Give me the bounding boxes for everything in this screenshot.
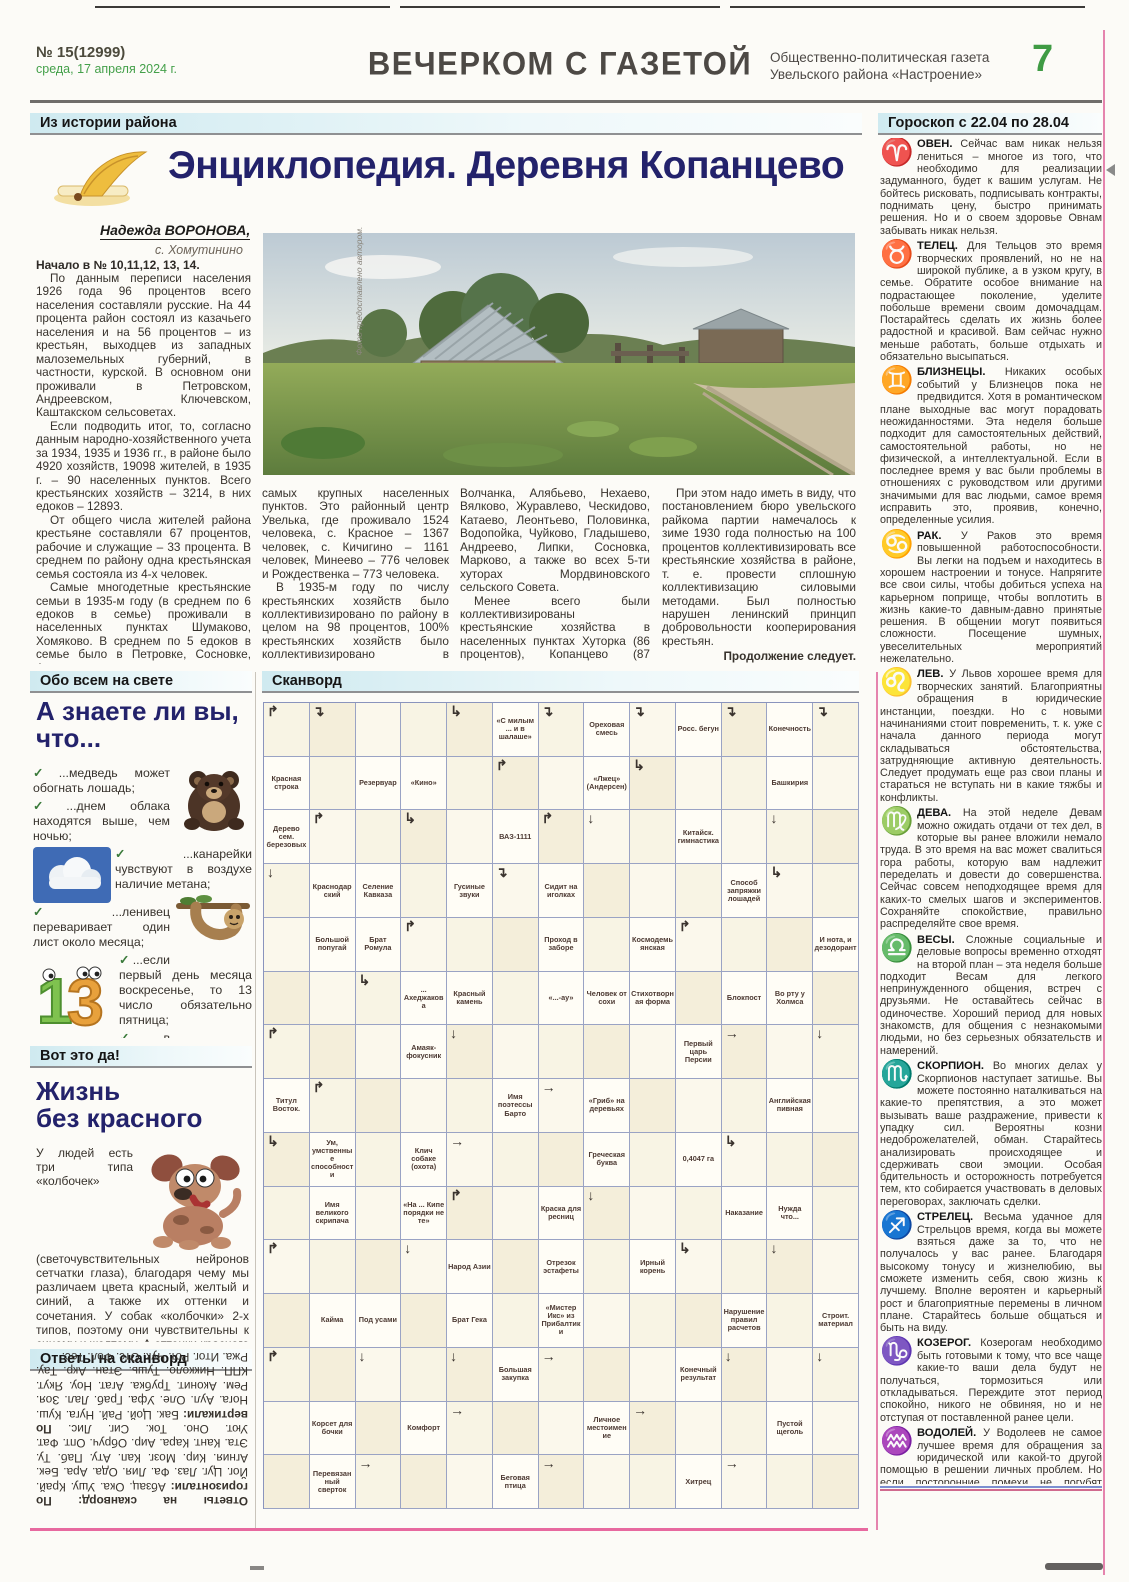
skanword-answer-cell: [767, 918, 813, 972]
cloud-illustration: [33, 847, 111, 903]
issue-date: среда, 17 апреля 2024 г.: [36, 62, 177, 76]
skanword-answer-cell: →: [722, 1455, 768, 1509]
aries-icon: ♈: [880, 139, 912, 166]
skanword-clue-cell: Брат Гека: [447, 1294, 493, 1348]
pink-column-rule: [876, 672, 878, 1530]
horoscope-sign-aquarius: ♒ВОДОЛЕЙ. У Водолеев не самое лучшее вре…: [880, 1427, 1102, 1484]
skanword-answer-cell: [722, 757, 768, 811]
skanword-answer-cell: [630, 1025, 676, 1079]
skanword-answer-cell: [401, 864, 447, 918]
skanword-clue-cell: «Мистер Икс» из Прибалтики: [539, 1294, 585, 1348]
skanword-clue-cell: Китайск. гимнастика: [676, 810, 722, 864]
publisher-line: Увельского района «Настроение»: [770, 67, 1020, 84]
skanword-answer-cell: ↱: [401, 918, 447, 972]
facts-title-line: А знаете ли вы,: [36, 698, 239, 725]
skanword-clue-cell: Селение Кавказа: [356, 864, 402, 918]
skanword-answer-cell: [676, 1294, 722, 1348]
to-be-continued: Продолжение следует.: [662, 650, 856, 663]
skanword-answer-cell: [401, 703, 447, 757]
skanword-arrow: ↓: [404, 1241, 411, 1255]
horoscope-sign-cancer: ♋РАК. У Раков это время повышенной работ…: [880, 530, 1102, 666]
skanword-answer-cell: ↓: [356, 1348, 402, 1402]
skanword-clue-cell: Первый царь Персии: [676, 1025, 722, 1079]
leo-icon: ♌: [880, 669, 912, 696]
skanword-answer-cell: [813, 1133, 859, 1187]
horoscope-sign-taurus: ♉ТЕЛЕЦ. Для Тельцов это время творческих…: [880, 240, 1102, 363]
check-icon: ✓: [119, 953, 131, 967]
skanword-answer-cell: [310, 1348, 356, 1402]
skanword-answer-cell: [813, 1402, 859, 1456]
horoscope-sign-name: СКОРПИОН.: [917, 1060, 993, 1072]
horoscope-sign-name: ЛЕВ.: [917, 668, 949, 680]
skanword-arrow: ↓: [725, 1349, 732, 1363]
skanword-answer-cell: ↱: [493, 757, 539, 811]
horoscope-sign-name: СТРЕЛЕЦ.: [917, 1211, 984, 1223]
skanword-answer-cell: ↳: [676, 1240, 722, 1294]
skanword-answer-cell: [356, 1402, 402, 1456]
facts-title: А знаете ли вы, что...: [36, 698, 239, 753]
skanword-answer-cell: [401, 1079, 447, 1133]
skanword-answer-cell: ↓: [767, 1240, 813, 1294]
skanword-clue-cell: Блокпост: [722, 972, 768, 1026]
skanword-arrow: →: [359, 1456, 373, 1470]
skanword-arrow: →: [450, 1134, 464, 1148]
skanword-answer-cell: [493, 1133, 539, 1187]
skanword-clue-cell: Наказание: [722, 1187, 768, 1241]
skanword-arrow: ↓: [450, 1026, 457, 1040]
skanword-answer-cell: [264, 972, 310, 1026]
article-paragraph: самых крупных населенных пунктов. Это ра…: [262, 487, 449, 581]
skanword-clue-cell: Нарушение правил расчетов: [722, 1294, 768, 1348]
skanword-answer-cell: [356, 1133, 402, 1187]
skanword-answer-cell: [493, 1240, 539, 1294]
article-paragraph: При этом надо иметь в виду, что постанов…: [662, 487, 856, 648]
skanword-clue-cell: Конечность: [767, 703, 813, 757]
scorpio-icon: ♏: [880, 1061, 912, 1088]
skanword-clue-cell: Гусиные звуки: [447, 864, 493, 918]
facts-list: ✓...медведь может обогнать лошадь; ✓...д…: [33, 766, 252, 1038]
skanword-clue-cell: «...-ау»: [539, 972, 585, 1026]
skanword-answer-cell: ↱: [264, 1348, 310, 1402]
horoscope-sign-name: ТЕЛЕЦ.: [917, 240, 967, 252]
skanword-answer-cell: ↱: [264, 1025, 310, 1079]
newspaper-page: № 15(12999) среда, 17 апреля 2024 г. ВЕЧ…: [0, 0, 1129, 1582]
skanword-arrow: ↓: [267, 865, 274, 879]
skanword-answer-cell: ↓: [767, 810, 813, 864]
skanword-answer-cell: [813, 1187, 859, 1241]
skanword-answer-cell: [401, 1455, 447, 1509]
skanword-arrow: ↱: [313, 811, 325, 825]
skanword-arrow: ↓: [770, 1241, 777, 1255]
skanword-arrow: ↱: [267, 1349, 279, 1363]
article-paragraph: Если подводить итог, то, согласно данным…: [36, 420, 251, 514]
skanword-arrow: →: [633, 1403, 647, 1417]
publisher-line: Общественно-политическая газета: [770, 50, 1020, 67]
skanword-answer-cell: [310, 972, 356, 1026]
byline-author: Надежда ВОРОНОВА,: [100, 222, 250, 240]
margin-arrow-mark: [1106, 164, 1115, 176]
skanword-clue-cell: Сидит на иголках: [539, 864, 585, 918]
skanword-arrow: ↳: [770, 865, 782, 879]
section-bar-history: Из истории района: [30, 113, 862, 135]
skanword-arrow: ↓: [450, 1349, 457, 1363]
skanword-answer-cell: [813, 757, 859, 811]
facts-title-line: что...: [36, 725, 239, 752]
skanword-clue-cell: Беговая птица: [493, 1455, 539, 1509]
skanword-clue-cell: Титул Восток.: [264, 1079, 310, 1133]
skanword-clue-cell: Краска для ресниц: [539, 1187, 585, 1241]
skanword-answer-cell: [584, 1240, 630, 1294]
skanword-answer-cell: →: [539, 1455, 585, 1509]
skanword-answer-cell: [813, 810, 859, 864]
horoscope-sign-gemini: ♊БЛИЗНЕЦЫ. Никаких особых событий у Близ…: [880, 366, 1102, 526]
skanword-answer-cell: ↱: [310, 1079, 356, 1133]
skanword-answer-cell: [447, 918, 493, 972]
skanword-answer-cell: →: [539, 1079, 585, 1133]
skanword-answer-cell: [813, 972, 859, 1026]
section-bar-facts: Обо всем на свете: [30, 671, 252, 693]
skanword-clue-cell: Красная строка: [264, 757, 310, 811]
cancer-icon: ♋: [880, 531, 912, 558]
skanword-answer-cell: ↳: [722, 1133, 768, 1187]
column-rule: [255, 672, 256, 1530]
fact-text: ...если первый день месяца воскресенье, …: [119, 953, 252, 1027]
wow-article: У людей есть три типа «колбочек» (светоч…: [36, 1146, 249, 1342]
skanword-arrow: ↓: [816, 1349, 823, 1363]
skanword-answer-cell: [584, 864, 630, 918]
skanword-answer-cell: →: [447, 1402, 493, 1456]
wow-title: Жизнь без красного: [36, 1078, 202, 1133]
skanword-answer-cell: ↓: [722, 1348, 768, 1402]
skanword-arrow: ↱: [267, 1026, 279, 1040]
skanword-answer-cell: ↓: [813, 1348, 859, 1402]
skanword-answer-cell: [813, 1240, 859, 1294]
skanword-arrow: →: [542, 1080, 556, 1094]
skanword-answer-cell: ↓: [401, 1240, 447, 1294]
horoscope-sign-name: ВЕСЫ.: [917, 934, 966, 946]
skanword-clue-cell: Конечный результат: [676, 1348, 722, 1402]
skanword-clue-cell: Кайма: [310, 1294, 356, 1348]
skanword-arrow: ↴: [633, 704, 645, 718]
skanword-clue-cell: Краснодарский: [310, 864, 356, 918]
check-icon: ✓: [115, 847, 181, 861]
skanword-answer-cell: ↓: [447, 1348, 493, 1402]
libra-icon: ♎: [880, 935, 912, 962]
horoscope-sign-scorpio: ♏СКОРПИОН. Во многих делах у Скорпионов …: [880, 1060, 1102, 1208]
skanword-answer-cell: [584, 1025, 630, 1079]
number-13-illustration: 1 3: [33, 953, 115, 1031]
skanword-answer-cell: [676, 1402, 722, 1456]
skanword-arrow: ↱: [267, 1241, 279, 1255]
skanword-answer-cell: [356, 1025, 402, 1079]
skanword-arrow: ↱: [404, 919, 416, 933]
skanword-answer-cell: [630, 1187, 676, 1241]
section-bar-horoscope: Гороскоп с 22.04 по 28.04: [878, 113, 1102, 135]
skanword-clue-cell: «Лжец» (Андерсен): [584, 757, 630, 811]
article-paragraph: Волчанка, Алябьево, Нехаево, Вялково, Жу…: [460, 487, 650, 595]
skanword-clue-cell: «С милым ... и в шалаше»: [493, 703, 539, 757]
skanword-answer-cell: [264, 1455, 310, 1509]
skanword-answer-cell: [493, 1187, 539, 1241]
skanword-clue-cell: Большая закупка: [493, 1348, 539, 1402]
skanword-clue-cell: Комфорт: [401, 1402, 447, 1456]
skanword-answer-cell: [630, 1348, 676, 1402]
skanword-clue-cell: Стихотворная форма: [630, 972, 676, 1026]
skanword-clue-cell: Космодемьянская: [630, 918, 676, 972]
article-column-3: Волчанка, Алябьево, Нехаево, Вялково, Жу…: [460, 487, 650, 663]
skanword-clue-cell: Ирный корень: [630, 1240, 676, 1294]
skanword-answer-cell: ↓: [813, 1025, 859, 1079]
skanword-clue-cell: Проход в заборе: [539, 918, 585, 972]
skanword-clue-cell: Резервуар: [356, 757, 402, 811]
article-paragraph: По данным переписи населения 1926 года 9…: [36, 272, 251, 420]
skanword-answer-cell: ↳: [630, 757, 676, 811]
skanword-arrow: →: [542, 1456, 556, 1470]
check-icon: ✓: [33, 905, 110, 919]
skanword-clue-cell: Большой попугай: [310, 918, 356, 972]
wow-title-line: Жизнь: [36, 1078, 202, 1105]
skanword-clue-cell: Башкирия: [767, 757, 813, 811]
article-paragraph: Самые многодетные крестьянские семьи в 1…: [36, 581, 251, 664]
skanword-arrow: →: [725, 1026, 739, 1040]
quill-icon: [50, 148, 172, 208]
skanword-answer-cell: [767, 1348, 813, 1402]
publisher-info: Общественно-политическая газета Увельско…: [770, 50, 1020, 84]
article-paragraph: Менее всего были коллективизированы крес…: [460, 595, 650, 664]
skanword-arrow: ↴: [725, 704, 737, 718]
article-column-2: самых крупных населенных пунктов. Это ра…: [262, 487, 449, 663]
skanword-arrow: →: [725, 1456, 739, 1470]
skanword-arrow: ↱: [267, 704, 279, 718]
horoscope-sign-name: БЛИЗНЕЦЫ.: [917, 366, 1005, 378]
skanword-answer-cell: [539, 1402, 585, 1456]
skanword-clue-cell: «Гриб» на деревьях: [584, 1079, 630, 1133]
skanword-clue-cell: Амаяк-фокусник: [401, 1025, 447, 1079]
skanword-answer-cell: [722, 1079, 768, 1133]
skanword-answer-cell: ↴: [493, 864, 539, 918]
skanword-answer-cell: [447, 1079, 493, 1133]
skanword-answer-cell: [264, 1402, 310, 1456]
skanword-answer-cell: ↴: [630, 703, 676, 757]
skanword-clue-cell: Английская пивная: [767, 1079, 813, 1133]
skanword-answer-cell: [584, 1348, 630, 1402]
skanword-answer-cell: [539, 1133, 585, 1187]
skanword-clue-cell: Имя великого скрипача: [310, 1187, 356, 1241]
skanword-clue-cell: Ум, умственные способности: [310, 1133, 356, 1187]
skanword-clue-cell: Во рту у Холмса: [767, 972, 813, 1026]
skanword-answer-cell: [676, 1187, 722, 1241]
skanword-clue-cell: Имя поэтессы Барто: [493, 1079, 539, 1133]
skanword-answer-cell: ↴: [539, 703, 585, 757]
skanword-answer-cell: [630, 1294, 676, 1348]
horoscope-sign-name: РАК.: [917, 530, 961, 542]
skanword-clue-cell: Ореховая смесь: [584, 703, 630, 757]
bottom-rule: [30, 1528, 868, 1531]
skanword-answer-cell: [813, 1455, 859, 1509]
horoscope-sign-name: ВОДОЛЕЙ.: [917, 1427, 983, 1439]
skanword-answer-cell: [676, 864, 722, 918]
skanword-clue-cell: Красный камень: [447, 972, 493, 1026]
skanword-answer-cell: ↳: [264, 1133, 310, 1187]
skanword-answer-cell: [630, 864, 676, 918]
skanword-answer-cell: ↱: [264, 1240, 310, 1294]
skanword-answer-cell: [676, 1079, 722, 1133]
skanword-clue-cell: Пустой щеголь: [767, 1402, 813, 1456]
sloth-illustration: [174, 895, 252, 955]
wow-title-line: без красного: [36, 1105, 202, 1132]
skanword-arrow: →: [450, 1403, 464, 1417]
page-number: 7: [1032, 38, 1053, 81]
skanword-arrow: ↴: [496, 865, 508, 879]
skanword-clue-cell: Брат Ромула: [356, 918, 402, 972]
skanword-clue-cell: Дерево сем. березовых: [264, 810, 310, 864]
article-column-4: При этом надо иметь в виду, что постанов…: [662, 487, 856, 663]
aquarius-icon: ♒: [880, 1428, 912, 1455]
skanword-answer-cell: ↴: [310, 703, 356, 757]
skanword-arrow: ↳: [359, 973, 371, 987]
page-edge-rule: [1103, 30, 1105, 1575]
skanword-arrow: ↓: [816, 1026, 823, 1040]
skanword-answer-cell: →: [630, 1402, 676, 1456]
skanword-answer-cell: ↱: [264, 703, 310, 757]
skanword-answer-cell: [722, 918, 768, 972]
skanword-clue-cell: «На ... Кипе порядки не те»: [401, 1187, 447, 1241]
skanword-answer-cell: [722, 1402, 768, 1456]
skanword-answer-cell: [813, 1079, 859, 1133]
check-icon: ✓: [33, 766, 57, 780]
taurus-icon: ♉: [880, 241, 912, 268]
skanword-answer-cell: ↳: [767, 864, 813, 918]
skanword-answer-cell: ↓: [584, 1187, 630, 1241]
article-paragraph: От общего числа жителей района крестьяне…: [36, 514, 251, 581]
skanword-answer-cell: [447, 757, 493, 811]
horoscope-end-rule: [880, 1486, 1102, 1488]
skanword-arrow: ↱: [313, 1080, 325, 1094]
header-rule: [30, 100, 1102, 103]
skanword-answer-cell: [630, 1079, 676, 1133]
skanword-clue-cell: Отрезок эстафеты: [539, 1240, 585, 1294]
capricorn-icon: ♑: [880, 1338, 912, 1365]
skanword-clue-cell: ВАЗ-1111: [493, 810, 539, 864]
skanword-arrow: ↱: [679, 919, 691, 933]
skanword-clue-cell: Хитрец: [676, 1455, 722, 1509]
bear-illustration: [174, 766, 252, 832]
print-artifact: [400, 6, 720, 8]
skanword-answer-cell: ↓: [447, 1025, 493, 1079]
skanword-answer-cell: [356, 703, 402, 757]
section-bar-wow: Вот это да!: [30, 1046, 252, 1068]
skanword-answer-cell: [493, 1402, 539, 1456]
skanword-answer-cell: [767, 1025, 813, 1079]
mosquito-illustration: [174, 1031, 252, 1038]
skanword-clue-cell: Способ запряжки лошадей: [722, 864, 768, 918]
skanword-answers: Ответы на сканворд: По горизонтали: Абза…: [36, 1380, 248, 1508]
skanword-clue-cell: Личное местоимение: [584, 1402, 630, 1456]
check-icon: ✓: [119, 1031, 151, 1038]
print-artifact: [730, 6, 1085, 8]
horoscope-sign-sagittarius: ♐СТРЕЛЕЦ. Весьма удачное для Стрельцов в…: [880, 1211, 1102, 1334]
print-artifact: [1045, 1563, 1103, 1570]
skanword-arrow: ↳: [679, 1241, 691, 1255]
horoscope-end-rule: [880, 1489, 1102, 1491]
skanword-arrow: ↓: [587, 1188, 594, 1202]
print-artifact: [95, 6, 390, 8]
skanword-clue-cell: И нота, и дезодорант: [813, 918, 859, 972]
skanword-clue-cell: Нужда что...: [767, 1187, 813, 1241]
skanword-answer-cell: [676, 972, 722, 1026]
skanword-clue-cell: Народ Азии: [447, 1240, 493, 1294]
skanword-answer-cell: [401, 1294, 447, 1348]
skanword-answer-cell: [630, 1133, 676, 1187]
skanword-answer-cell: [356, 1079, 402, 1133]
skanword-answer-cell: [722, 810, 768, 864]
village-photo: [263, 233, 855, 475]
skanword-answer-cell: [447, 1455, 493, 1509]
skanword-answer-cell: [356, 1240, 402, 1294]
series-note: Начало в № 10,11,12, 13, 14.: [36, 258, 200, 272]
skanword-arrow: ↓: [770, 811, 777, 825]
skanword-answer-cell: [539, 757, 585, 811]
skanword-clue-cell: «Кино»: [401, 757, 447, 811]
skanword-answer-cell: →: [447, 1133, 493, 1187]
skanword-answer-cell: [584, 1294, 630, 1348]
skanword-answer-cell: →: [539, 1348, 585, 1402]
skanword-arrow: ↴: [542, 704, 554, 718]
skanword-answer-cell: [356, 810, 402, 864]
skanword-arrow: ↴: [313, 704, 325, 718]
skanword-arrow: ↳: [450, 704, 462, 718]
skanword-answer-cell: ↱: [447, 1187, 493, 1241]
dog-illustration: [137, 1146, 249, 1250]
skanword-answer-cell: [813, 864, 859, 918]
skanword-arrow: ↳: [267, 1134, 279, 1148]
skanword-clue-cell: ... Ахеджакова: [401, 972, 447, 1026]
skanword-answer-cell: [493, 918, 539, 972]
horoscope-column: ♈ОВЕН. Сейчас вам никак нельзя лениться …: [880, 138, 1102, 1484]
skanword-answer-cell: [767, 1294, 813, 1348]
gemini-icon: ♊: [880, 367, 912, 394]
skanword-answer-cell: →: [356, 1455, 402, 1509]
masthead: ВЕЧЕРКОМ С ГАЗЕТОЙ: [300, 45, 820, 83]
skanword-arrow: ↱: [450, 1188, 462, 1202]
skanword-answer-cell: ↱: [539, 810, 585, 864]
skanword-arrow: ↳: [725, 1134, 737, 1148]
horoscope-sign-virgo: ♍ДЕВА. На этой неделе Девам можно ожидат…: [880, 807, 1102, 930]
skanword-answer-cell: [310, 1025, 356, 1079]
skanword-answer-cell: [493, 1294, 539, 1348]
photo-credit: Фото предоставлено автором.: [354, 170, 364, 412]
skanword-clue-cell: Росс. бегун: [676, 703, 722, 757]
skanword-answer-cell: [447, 810, 493, 864]
skanword-answer-cell: →: [722, 1025, 768, 1079]
skanword-answer-cell: [539, 1025, 585, 1079]
skanword-arrow: ↓: [359, 1349, 366, 1363]
skanword-arrow: ↱: [542, 811, 554, 825]
skanword-clue-cell: Под усами: [356, 1294, 402, 1348]
byline-place: с. Хомутинино: [155, 243, 243, 257]
skanword-answer-cell: ↱: [676, 918, 722, 972]
article-title: Энциклопедия. Деревня Копанцево: [168, 144, 868, 188]
skanword-answer-cell: [630, 810, 676, 864]
skanword-arrow: ↓: [587, 811, 594, 825]
skanword-answer-cell: [493, 1025, 539, 1079]
skanword-answer-cell: [264, 1187, 310, 1241]
skanword-answer-cell: [767, 1455, 813, 1509]
skanword-answer-cell: ↳: [401, 810, 447, 864]
article-paragraph: В 1935-м году по числу крестьянских хозя…: [262, 581, 449, 663]
skanword-answer-cell: ↓: [584, 810, 630, 864]
skanword-answer-cell: ↴: [813, 703, 859, 757]
